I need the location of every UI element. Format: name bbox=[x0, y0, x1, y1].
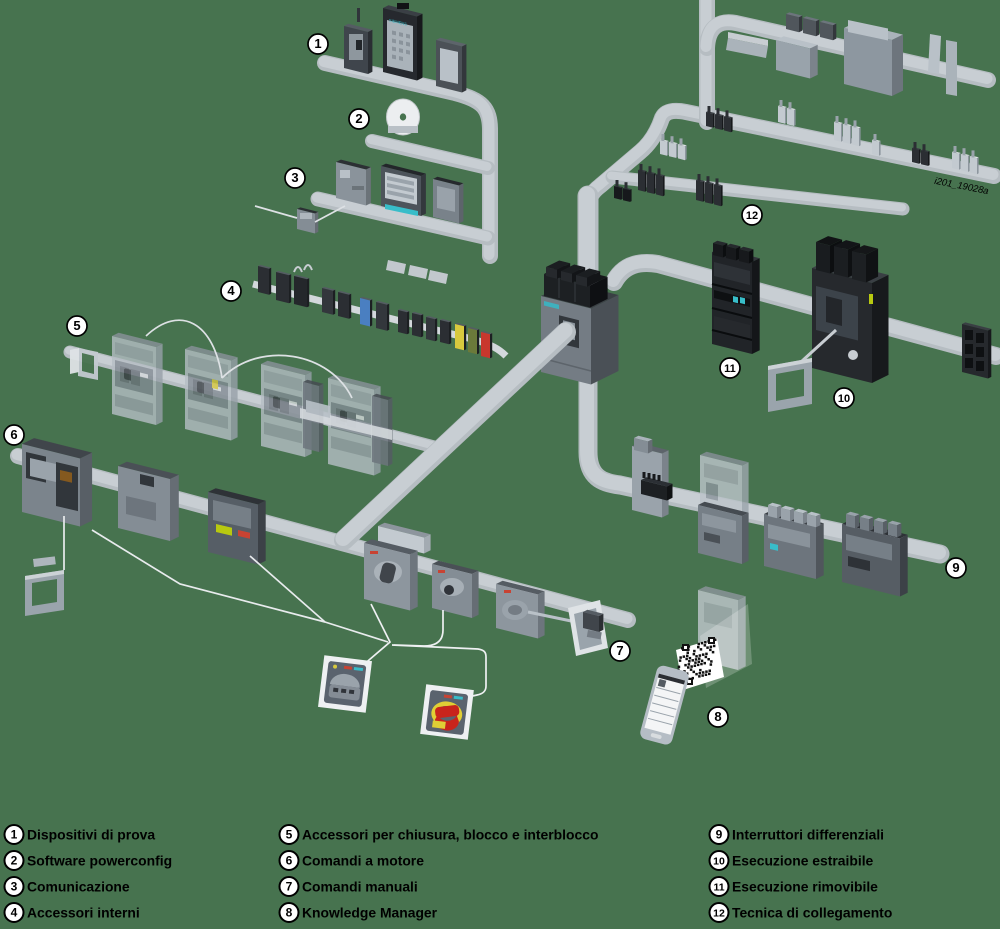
svg-text:Accessori per chiusura, blocco: Accessori per chiusura, blocco e interbl… bbox=[302, 826, 598, 842]
svg-text:1: 1 bbox=[11, 828, 18, 842]
svg-text:2: 2 bbox=[355, 111, 362, 126]
svg-text:Comunicazione: Comunicazione bbox=[27, 878, 130, 894]
svg-text:10: 10 bbox=[838, 393, 850, 405]
svg-text:12: 12 bbox=[746, 210, 758, 222]
svg-text:4: 4 bbox=[11, 906, 18, 920]
svg-text:9: 9 bbox=[716, 828, 723, 842]
svg-text:8: 8 bbox=[286, 906, 293, 920]
svg-text:6: 6 bbox=[286, 854, 293, 868]
svg-text:Esecuzione rimovibile: Esecuzione rimovibile bbox=[732, 878, 878, 894]
svg-text:3: 3 bbox=[11, 880, 18, 894]
svg-text:Software powerconfig: Software powerconfig bbox=[27, 852, 172, 868]
svg-text:3: 3 bbox=[291, 170, 298, 185]
svg-text:5: 5 bbox=[73, 318, 80, 333]
svg-text:Comandi a motore: Comandi a motore bbox=[302, 852, 424, 868]
svg-text:12: 12 bbox=[713, 908, 725, 920]
svg-text:4: 4 bbox=[227, 283, 235, 298]
svg-text:Accessori interni: Accessori interni bbox=[27, 904, 140, 920]
svg-text:10: 10 bbox=[713, 856, 725, 868]
svg-text:6: 6 bbox=[10, 427, 17, 442]
svg-text:Esecuzione estraibile: Esecuzione estraibile bbox=[732, 852, 874, 868]
svg-text:11: 11 bbox=[724, 363, 736, 375]
svg-text:Tecnica di collegamento: Tecnica di collegamento bbox=[732, 904, 892, 920]
svg-text:1: 1 bbox=[314, 36, 321, 51]
svg-text:7: 7 bbox=[286, 880, 293, 894]
svg-text:5: 5 bbox=[286, 828, 293, 842]
svg-text:Dispositivi di prova: Dispositivi di prova bbox=[27, 826, 155, 842]
svg-text:8: 8 bbox=[714, 709, 721, 724]
svg-text:Knowledge Manager: Knowledge Manager bbox=[302, 904, 438, 920]
svg-text:Interruttori differenziali: Interruttori differenziali bbox=[732, 826, 884, 842]
svg-text:11: 11 bbox=[713, 882, 724, 894]
svg-text:7: 7 bbox=[616, 643, 623, 658]
svg-text:9: 9 bbox=[952, 560, 959, 575]
svg-text:Comandi manuali: Comandi manuali bbox=[302, 878, 418, 894]
svg-text:2: 2 bbox=[11, 854, 18, 868]
